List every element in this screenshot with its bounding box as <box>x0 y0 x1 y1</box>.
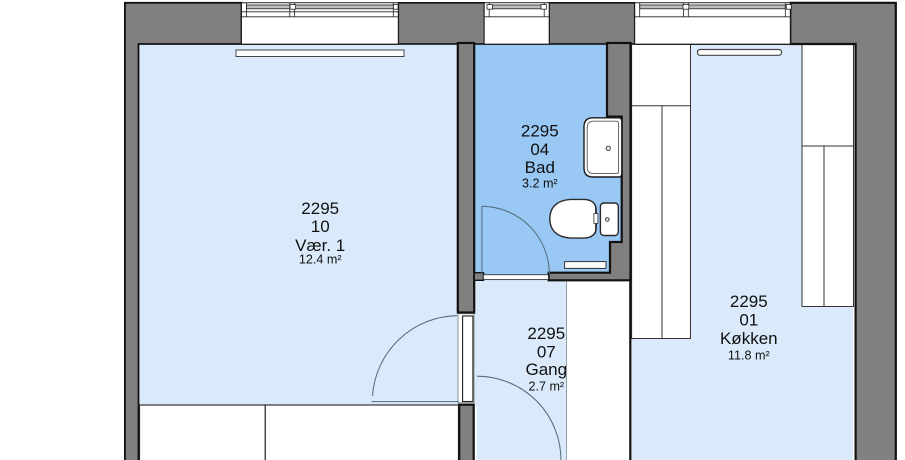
svg-text:Bad: Bad <box>525 158 555 177</box>
svg-text:Gang: Gang <box>526 360 568 379</box>
svg-text:2295: 2295 <box>521 122 559 141</box>
svg-text:04: 04 <box>530 140 549 159</box>
svg-text:Køkken: Køkken <box>720 329 778 348</box>
svg-text:2295: 2295 <box>527 324 565 343</box>
svg-text:3.2 m²: 3.2 m² <box>522 177 558 191</box>
svg-text:10: 10 <box>311 217 330 236</box>
svg-text:01: 01 <box>739 310 758 329</box>
svg-text:2295: 2295 <box>301 199 339 218</box>
svg-text:2.7 m²: 2.7 m² <box>528 379 564 393</box>
svg-text:11.8 m²: 11.8 m² <box>728 349 770 363</box>
svg-text:07: 07 <box>537 342 556 361</box>
svg-text:12.4 m²: 12.4 m² <box>299 253 342 267</box>
svg-text:2295: 2295 <box>730 292 768 311</box>
